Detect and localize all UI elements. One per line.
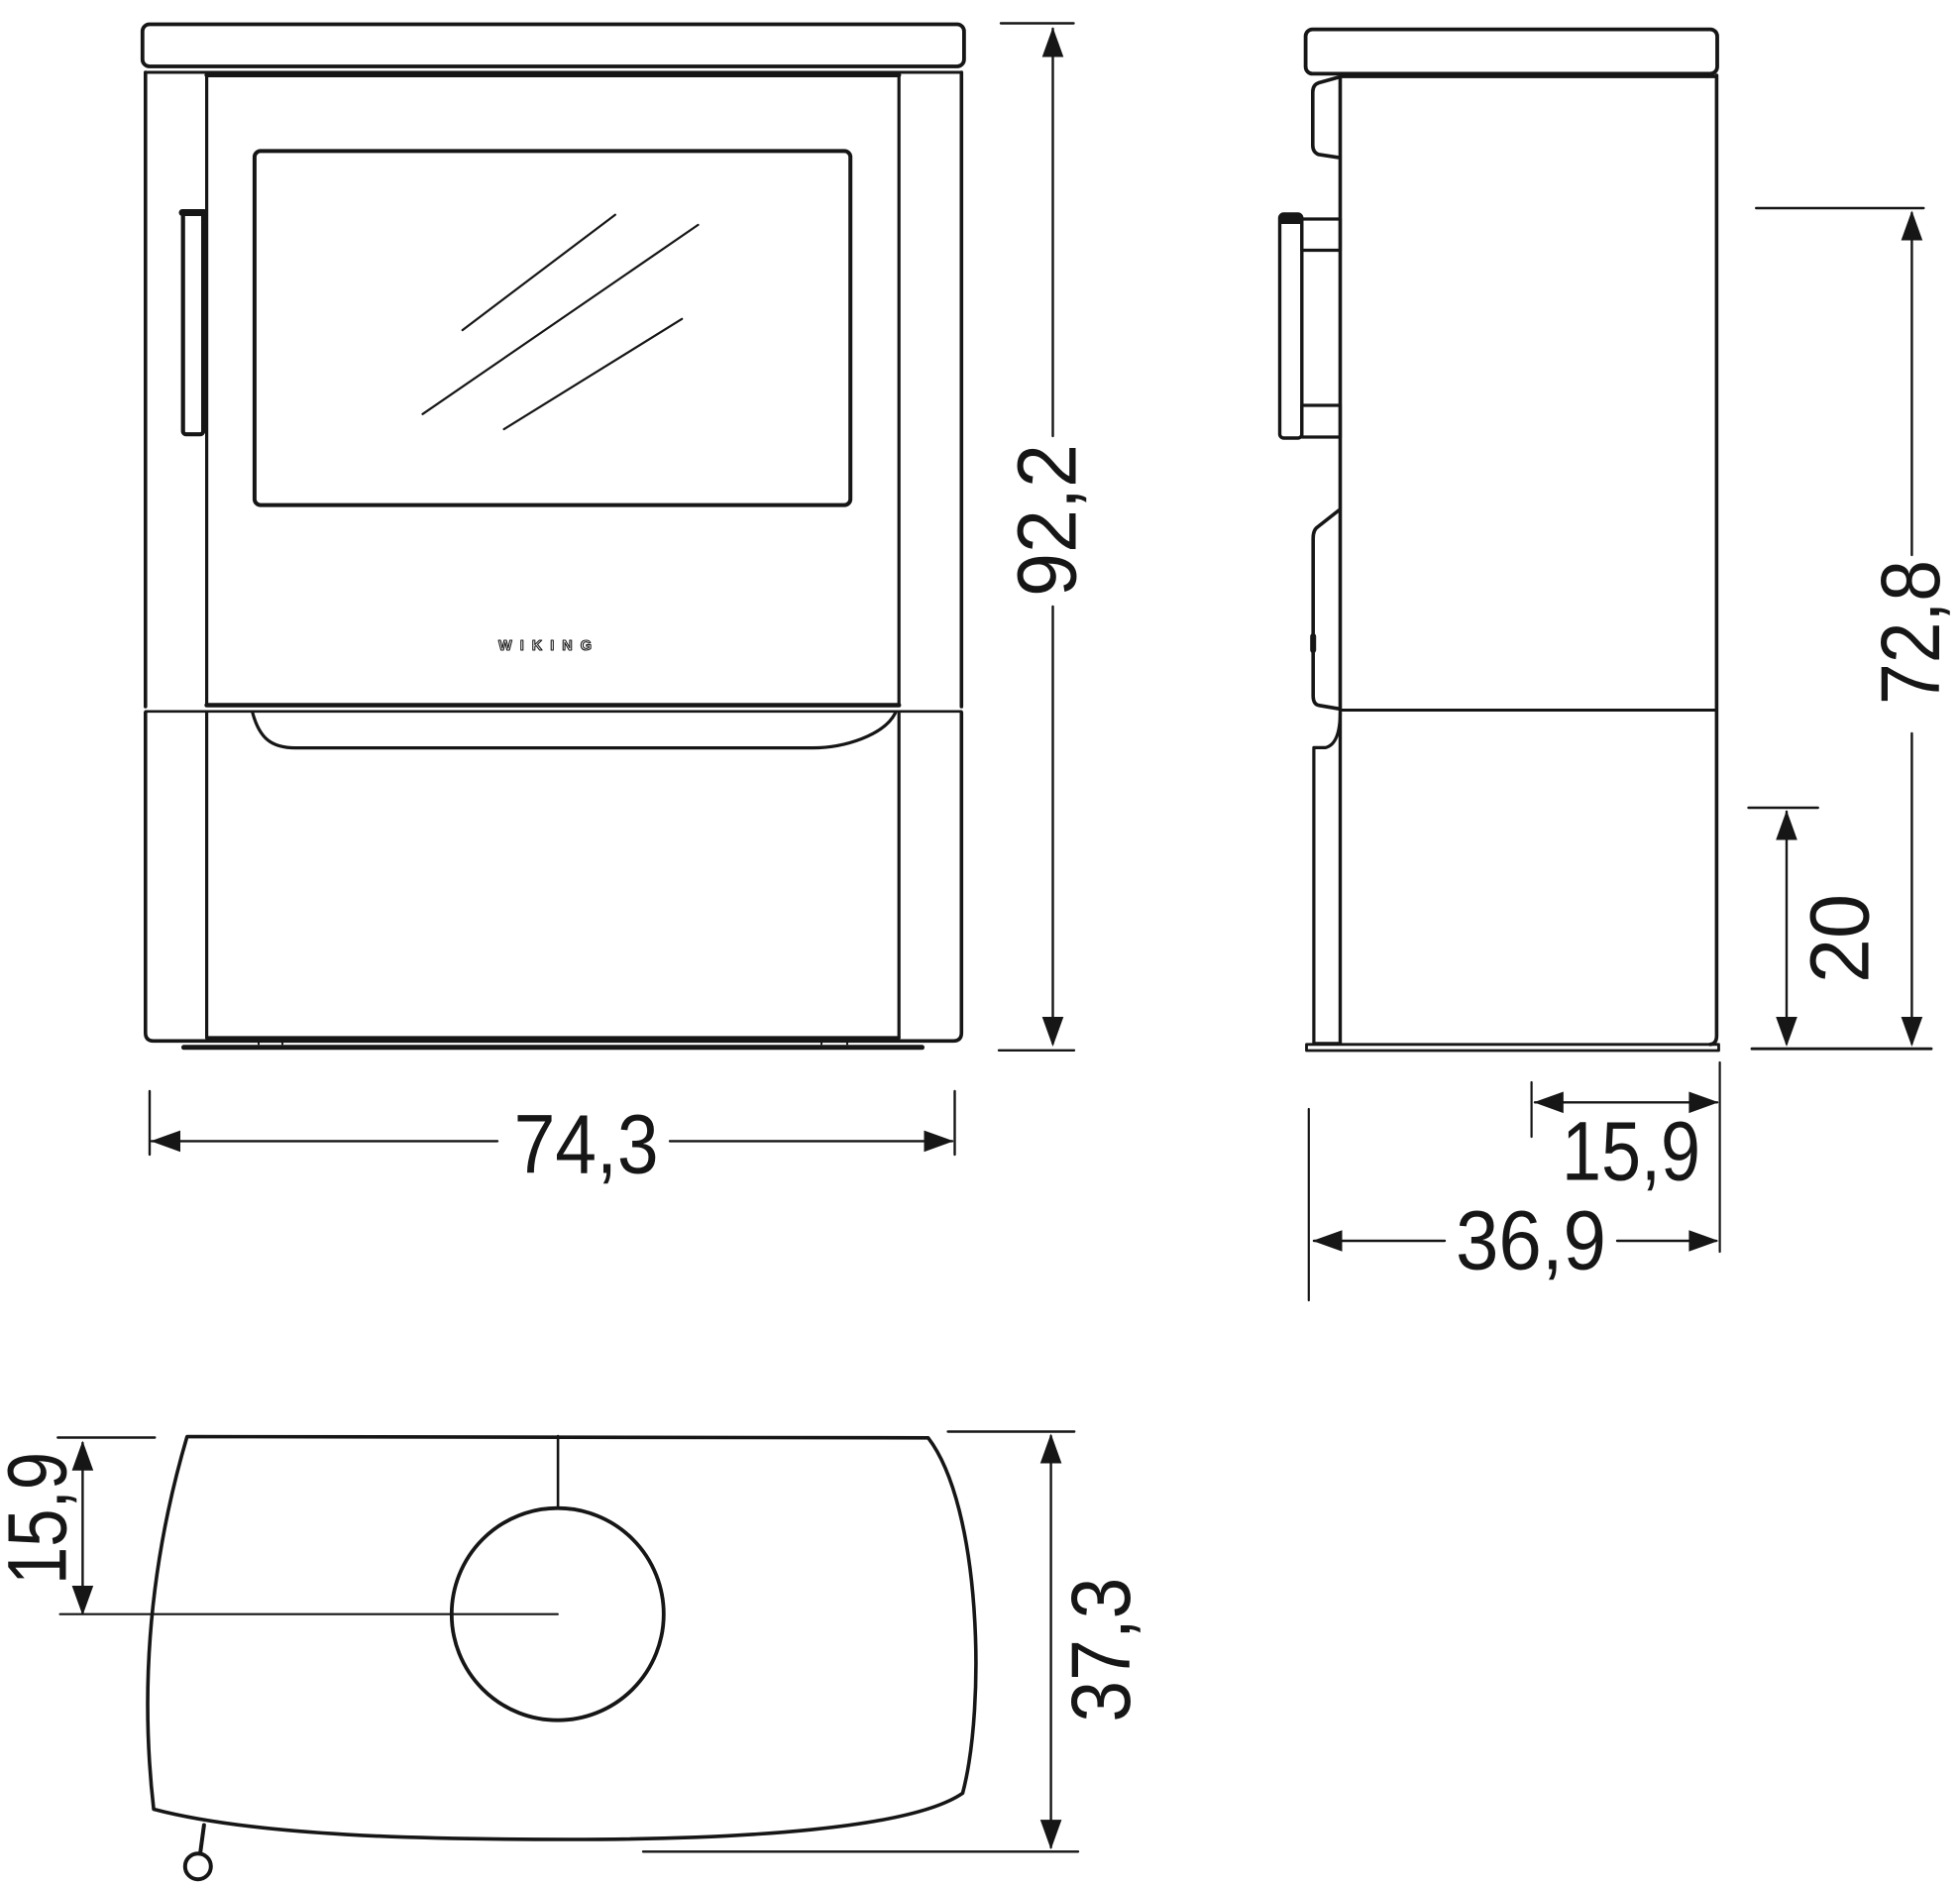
- svg-text:74,3: 74,3: [514, 1097, 659, 1190]
- svg-text:72,8: 72,8: [1864, 560, 1957, 705]
- svg-text:92,2: 92,2: [1001, 444, 1094, 597]
- svg-text:15,9: 15,9: [0, 1452, 84, 1585]
- svg-text:WIKING: WIKING: [498, 638, 599, 654]
- svg-text:37,3: 37,3: [1054, 1578, 1147, 1722]
- svg-text:15,9: 15,9: [1562, 1105, 1700, 1198]
- svg-text:36,9: 36,9: [1456, 1194, 1606, 1287]
- svg-text:20: 20: [1794, 894, 1887, 983]
